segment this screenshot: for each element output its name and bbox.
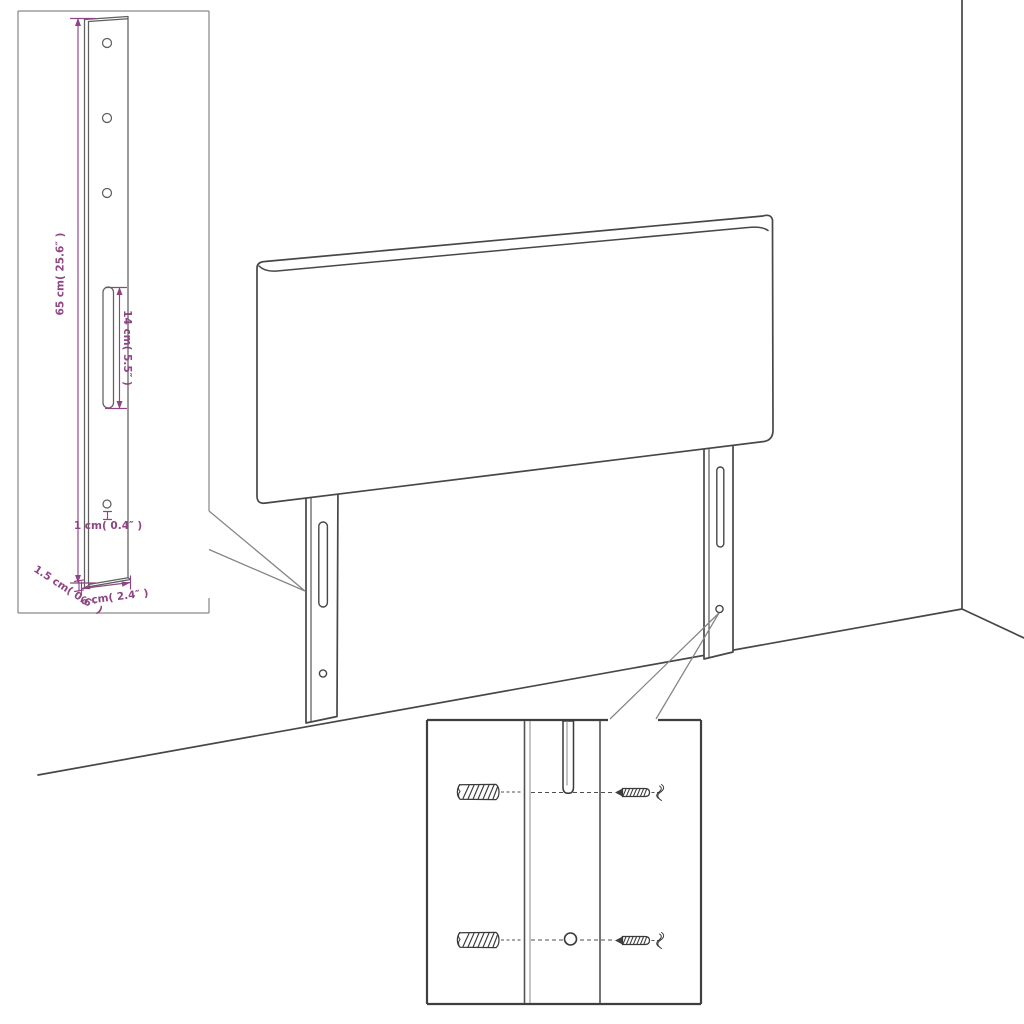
callout-wedge-right-lines [610,613,719,719]
dimension-65cm: 65 cm( 25.6″ ) [55,18,96,583]
screw-bottom [615,933,664,949]
dimension-6cm-arrow-left [81,584,91,589]
wall-plug-bottom [457,932,521,947]
leg-strip-closeup [525,721,601,1003]
strip-slot [563,721,574,793]
floor-line-left [38,609,962,775]
right-leg-hole [716,605,723,612]
callout-wedge-left [209,511,305,591]
dimension-65cm-arrow-top [75,18,81,26]
floor-line-right [962,609,1024,638]
bracket-hole-shading [104,46,110,198]
left-leg-slot [319,522,328,607]
left-leg-hole [319,670,326,677]
bracket-hole-4 [103,500,111,508]
bracket-slot [103,287,114,408]
callout-wedge-left-lines [209,511,305,591]
headboard-panel [257,215,773,503]
left-leg [306,480,338,723]
dimension-label-height: 65 cm( 25.6″ ) [55,233,67,316]
dimension-65cm-ticks [71,19,96,584]
dimension-1-5cm: 1.5 cm( 0.6″ ) [31,563,104,616]
headboard-dimension-diagram: 65 cm( 25.6″ ) 14 cm( 5.5″ ) 1 cm( 0.4″ … [0,0,1024,1024]
dimension-label-hole: 1 cm( 0.4″ ) [74,520,142,532]
right-leg-slot [717,467,724,547]
dimension-6cm-arrow-right [122,582,132,587]
bracket-detail-inset: 65 cm( 25.6″ ) 14 cm( 5.5″ ) 1 cm( 0.4″ … [18,11,209,617]
dimension-14cm: 14 cm( 5.5″ ) [106,287,134,409]
hardware-detail-inset [427,720,701,1004]
callout-wedge-right [610,613,719,719]
headboard-panel-outline [257,215,773,503]
dimension-label-width: 6 cm( 2.4″ ) [80,587,149,607]
dimension-1cm-ticks [104,512,112,520]
dimension-label-thickness: 1.5 cm( 0.6″ ) [31,563,104,616]
dimension-14cm-arrow-top [117,287,123,295]
dimension-label-slot: 14 cm( 5.5″ ) [121,310,133,386]
bracket-drawing [85,17,131,588]
dimension-14cm-arrow-bottom [117,401,123,409]
dimension-6cm: 6 cm( 2.4″ ) [80,576,149,608]
wall-plug-top [457,784,521,799]
right-leg [704,440,733,659]
screw-top [615,785,664,801]
